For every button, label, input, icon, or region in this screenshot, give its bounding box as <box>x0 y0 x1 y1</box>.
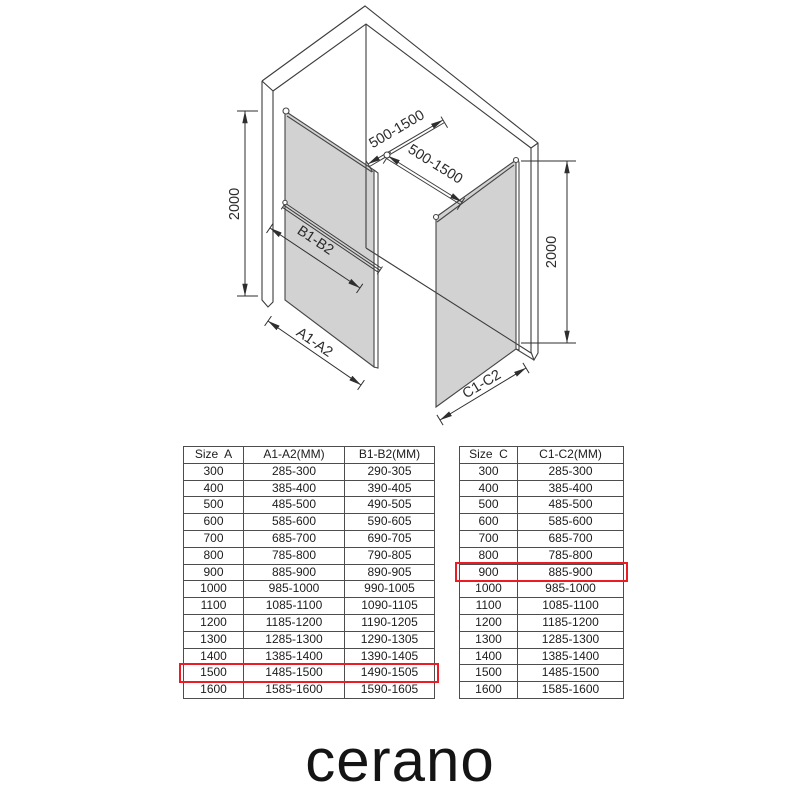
table-cell: 790-805 <box>345 547 435 564</box>
table-row: 900885-900890-905 <box>184 564 435 581</box>
table-row: 600585-600 <box>460 514 624 531</box>
table-row: 700685-700 <box>460 530 624 547</box>
table-cell: 1285-1300 <box>518 631 624 648</box>
table-cell: 785-800 <box>244 547 345 564</box>
table-row: 14001385-14001390-1405 <box>184 648 435 665</box>
table-row: 12001185-1200 <box>460 614 624 631</box>
height-left-label: 2000 <box>227 188 243 220</box>
table-row: 700685-700690-705 <box>184 530 435 547</box>
table-cell: 600 <box>184 514 244 531</box>
table-cell: 1000 <box>460 581 518 598</box>
table-cell: 1400 <box>184 648 244 665</box>
table-cell: 685-700 <box>244 530 345 547</box>
table-row: 900885-900 <box>460 564 624 581</box>
table-row: 400385-400 <box>460 480 624 497</box>
table-cell: 1185-1200 <box>518 614 624 631</box>
table-cell: 1385-1400 <box>244 648 345 665</box>
size-table-c-wrapper: Size C C1-C2(MM) 300285-300400385-400500… <box>459 446 624 699</box>
table-row: 16001585-16001590-1605 <box>184 682 435 699</box>
table-cell: 600 <box>460 514 518 531</box>
size-table-c: Size C C1-C2(MM) 300285-300400385-400500… <box>459 446 624 699</box>
table-row: 15001485-1500 <box>460 665 624 682</box>
table-row: 300285-300 <box>460 463 624 480</box>
table-row: 400385-400390-405 <box>184 480 435 497</box>
table-cell: 500 <box>184 497 244 514</box>
walk-in-shower-diagram: 2000 2000 500-1500 500-1500 B1-B2 A1-A2 <box>0 0 800 445</box>
table-cell: 385-400 <box>244 480 345 497</box>
table-cell: 1400 <box>460 648 518 665</box>
column-header: Size C <box>460 447 518 464</box>
table-cell: 1485-1500 <box>244 665 345 682</box>
table-cell: 590-605 <box>345 514 435 531</box>
table-row: 800785-800790-805 <box>184 547 435 564</box>
table-row: 1000985-1000 <box>460 581 624 598</box>
table-cell: 690-705 <box>345 530 435 547</box>
table-row: 500485-500 <box>460 497 624 514</box>
table-cell: 1200 <box>460 614 518 631</box>
table-cell: 700 <box>460 530 518 547</box>
table-cell: 1590-1605 <box>345 682 435 699</box>
column-header: Size A <box>184 447 244 464</box>
table-cell: 1500 <box>460 665 518 682</box>
column-header: A1-A2(MM) <box>244 447 345 464</box>
table-cell: 400 <box>460 480 518 497</box>
table-cell: 700 <box>184 530 244 547</box>
table-cell: 800 <box>184 547 244 564</box>
table-row: 15001485-15001490-1505 <box>184 665 435 682</box>
table-cell: 685-700 <box>518 530 624 547</box>
table-cell: 300 <box>460 463 518 480</box>
table-row: 500485-500490-505 <box>184 497 435 514</box>
table-cell: 585-600 <box>244 514 345 531</box>
table-cell: 1490-1505 <box>345 665 435 682</box>
table-cell: 1290-1305 <box>345 631 435 648</box>
column-header: B1-B2(MM) <box>345 447 435 464</box>
table-cell: 1500 <box>184 665 244 682</box>
table-cell: 1485-1500 <box>518 665 624 682</box>
table-cell: 500 <box>460 497 518 514</box>
support-bar-right-label: 500-1500 <box>405 142 465 188</box>
table-header-row: Size A A1-A2(MM) B1-B2(MM) <box>184 447 435 464</box>
table-cell: 890-905 <box>345 564 435 581</box>
table-cell: 1085-1100 <box>244 598 345 615</box>
table-cell: 1390-1405 <box>345 648 435 665</box>
table-row: 11001085-11001090-1105 <box>184 598 435 615</box>
table-cell: 1190-1205 <box>345 614 435 631</box>
table-cell: 1300 <box>184 631 244 648</box>
table-cell: 1585-1600 <box>518 682 624 699</box>
table-cell: 1100 <box>460 598 518 615</box>
page: 2000 2000 500-1500 500-1500 B1-B2 A1-A2 <box>0 0 800 800</box>
table-cell: 785-800 <box>518 547 624 564</box>
table-cell: 1090-1105 <box>345 598 435 615</box>
table-cell: 1200 <box>184 614 244 631</box>
table-cell: 1600 <box>460 682 518 699</box>
table-row: 1000985-1000990-1005 <box>184 581 435 598</box>
table-cell: 1285-1300 <box>244 631 345 648</box>
table-cell: 585-600 <box>518 514 624 531</box>
table-cell: 1300 <box>460 631 518 648</box>
table-row: 800785-800 <box>460 547 624 564</box>
table-header-row: Size C C1-C2(MM) <box>460 447 624 464</box>
table-cell: 300 <box>184 463 244 480</box>
table-row: 16001585-1600 <box>460 682 624 699</box>
column-header: C1-C2(MM) <box>518 447 624 464</box>
table-cell: 290-305 <box>345 463 435 480</box>
table-cell: 490-505 <box>345 497 435 514</box>
table-cell: 800 <box>460 547 518 564</box>
table-cell: 885-900 <box>244 564 345 581</box>
table-cell: 1085-1100 <box>518 598 624 615</box>
size-table-a-wrapper: Size A A1-A2(MM) B1-B2(MM) 300285-300290… <box>183 446 435 699</box>
table-cell: 900 <box>184 564 244 581</box>
table-cell: 285-300 <box>244 463 345 480</box>
table-row: 11001085-1100 <box>460 598 624 615</box>
table-cell: 985-1000 <box>244 581 345 598</box>
brand-logo: cerano <box>0 726 800 795</box>
table-cell: 1100 <box>184 598 244 615</box>
table-cell: 1185-1200 <box>244 614 345 631</box>
table-cell: 1385-1400 <box>518 648 624 665</box>
height-right-label: 2000 <box>544 236 560 268</box>
table-cell: 1000 <box>184 581 244 598</box>
table-cell: 485-500 <box>518 497 624 514</box>
table-row: 13001285-1300 <box>460 631 624 648</box>
table-row: 300285-300290-305 <box>184 463 435 480</box>
table-cell: 885-900 <box>518 564 624 581</box>
glass-panels <box>285 111 516 407</box>
size-table-a: Size A A1-A2(MM) B1-B2(MM) 300285-300290… <box>183 446 435 699</box>
table-cell: 485-500 <box>244 497 345 514</box>
table-cell: 390-405 <box>345 480 435 497</box>
table-cell: 1600 <box>184 682 244 699</box>
table-row: 14001385-1400 <box>460 648 624 665</box>
table-row: 600585-600590-605 <box>184 514 435 531</box>
table-cell: 990-1005 <box>345 581 435 598</box>
table-cell: 900 <box>460 564 518 581</box>
table-cell: 1585-1600 <box>244 682 345 699</box>
table-cell: 400 <box>184 480 244 497</box>
table-row: 13001285-13001290-1305 <box>184 631 435 648</box>
table-cell: 385-400 <box>518 480 624 497</box>
table-cell: 285-300 <box>518 463 624 480</box>
table-row: 12001185-12001190-1205 <box>184 614 435 631</box>
table-cell: 985-1000 <box>518 581 624 598</box>
